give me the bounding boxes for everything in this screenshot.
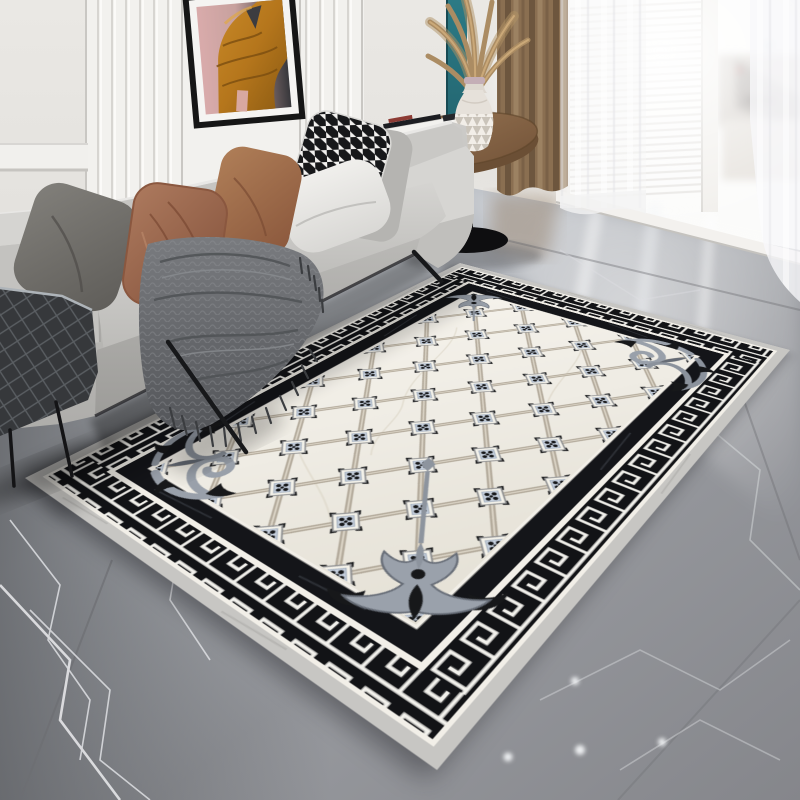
foreground-layer <box>0 0 800 800</box>
living-room-scene <box>0 0 800 800</box>
